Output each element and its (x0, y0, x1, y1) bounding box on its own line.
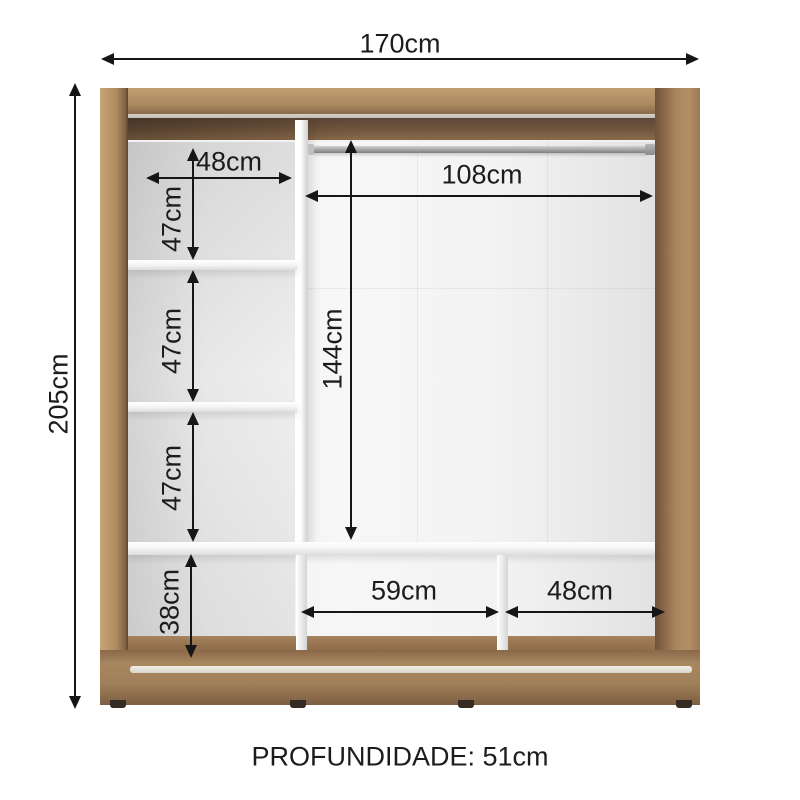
dim-hanging-width-arrow (307, 195, 651, 197)
hanging-rod-end-cap (645, 144, 655, 155)
full-width-shelf (127, 542, 655, 555)
shelf-2 (127, 402, 297, 412)
wardrobe-interior (127, 118, 655, 655)
hanging-rod-mount (308, 144, 314, 155)
dim-hanging-height-label: 144cm (320, 308, 347, 389)
dim-shelf-cell-1-label: 47cm (159, 186, 186, 252)
dim-hanging-height-arrow (350, 142, 352, 538)
dim-shelf-column-width-arrow (148, 177, 290, 179)
dim-total-height-arrow (74, 85, 76, 707)
dim-hanging-width-label: 108cm (441, 162, 522, 189)
interior-ceiling (127, 118, 655, 142)
wardrobe-dimension-diagram: 170cm 205cm 48cm 47cm 47cm 47cm 38cm 108… (0, 0, 800, 800)
frame-base (100, 650, 700, 705)
dim-shelf-cell-4-arrow (190, 556, 192, 656)
dim-shelf-cell-3-arrow (192, 414, 194, 540)
back-panel-seam (417, 142, 418, 542)
door-panel-left (100, 88, 128, 705)
wardrobe-foot (676, 700, 692, 708)
dim-bottom-middle-label: 59cm (371, 578, 437, 605)
bottom-divider-right (497, 555, 508, 650)
hanging-rod (311, 146, 649, 153)
wardrobe-foot (110, 700, 126, 708)
vertical-divider (295, 120, 308, 542)
dim-bottom-right-arrow (507, 611, 663, 613)
dim-total-height-label: 205cm (46, 353, 73, 434)
wardrobe-foot (458, 700, 474, 708)
shelf-1 (127, 260, 297, 270)
dim-shelf-column-width-label: 48cm (196, 149, 262, 176)
dim-bottom-right-label: 48cm (547, 578, 613, 605)
dim-shelf-cell-2-label: 47cm (159, 308, 186, 374)
wardrobe-foot (290, 700, 306, 708)
dim-shelf-cell-2-arrow (192, 272, 194, 400)
dim-shelf-cell-4-label: 38cm (157, 569, 184, 635)
back-panel-seam (308, 288, 655, 289)
base-door-track (130, 666, 692, 673)
dim-shelf-cell-1-arrow (192, 150, 194, 258)
dim-shelf-cell-3-label: 47cm (159, 445, 186, 511)
depth-label: PROFUNDIDADE: 51cm (251, 742, 548, 773)
dim-total-width-arrow (103, 58, 697, 60)
bottom-divider-left (296, 555, 307, 650)
dim-bottom-middle-arrow (303, 611, 497, 613)
dim-total-width-label: 170cm (359, 31, 440, 58)
left-column-shade (127, 142, 295, 655)
back-panel-seam (547, 142, 548, 542)
